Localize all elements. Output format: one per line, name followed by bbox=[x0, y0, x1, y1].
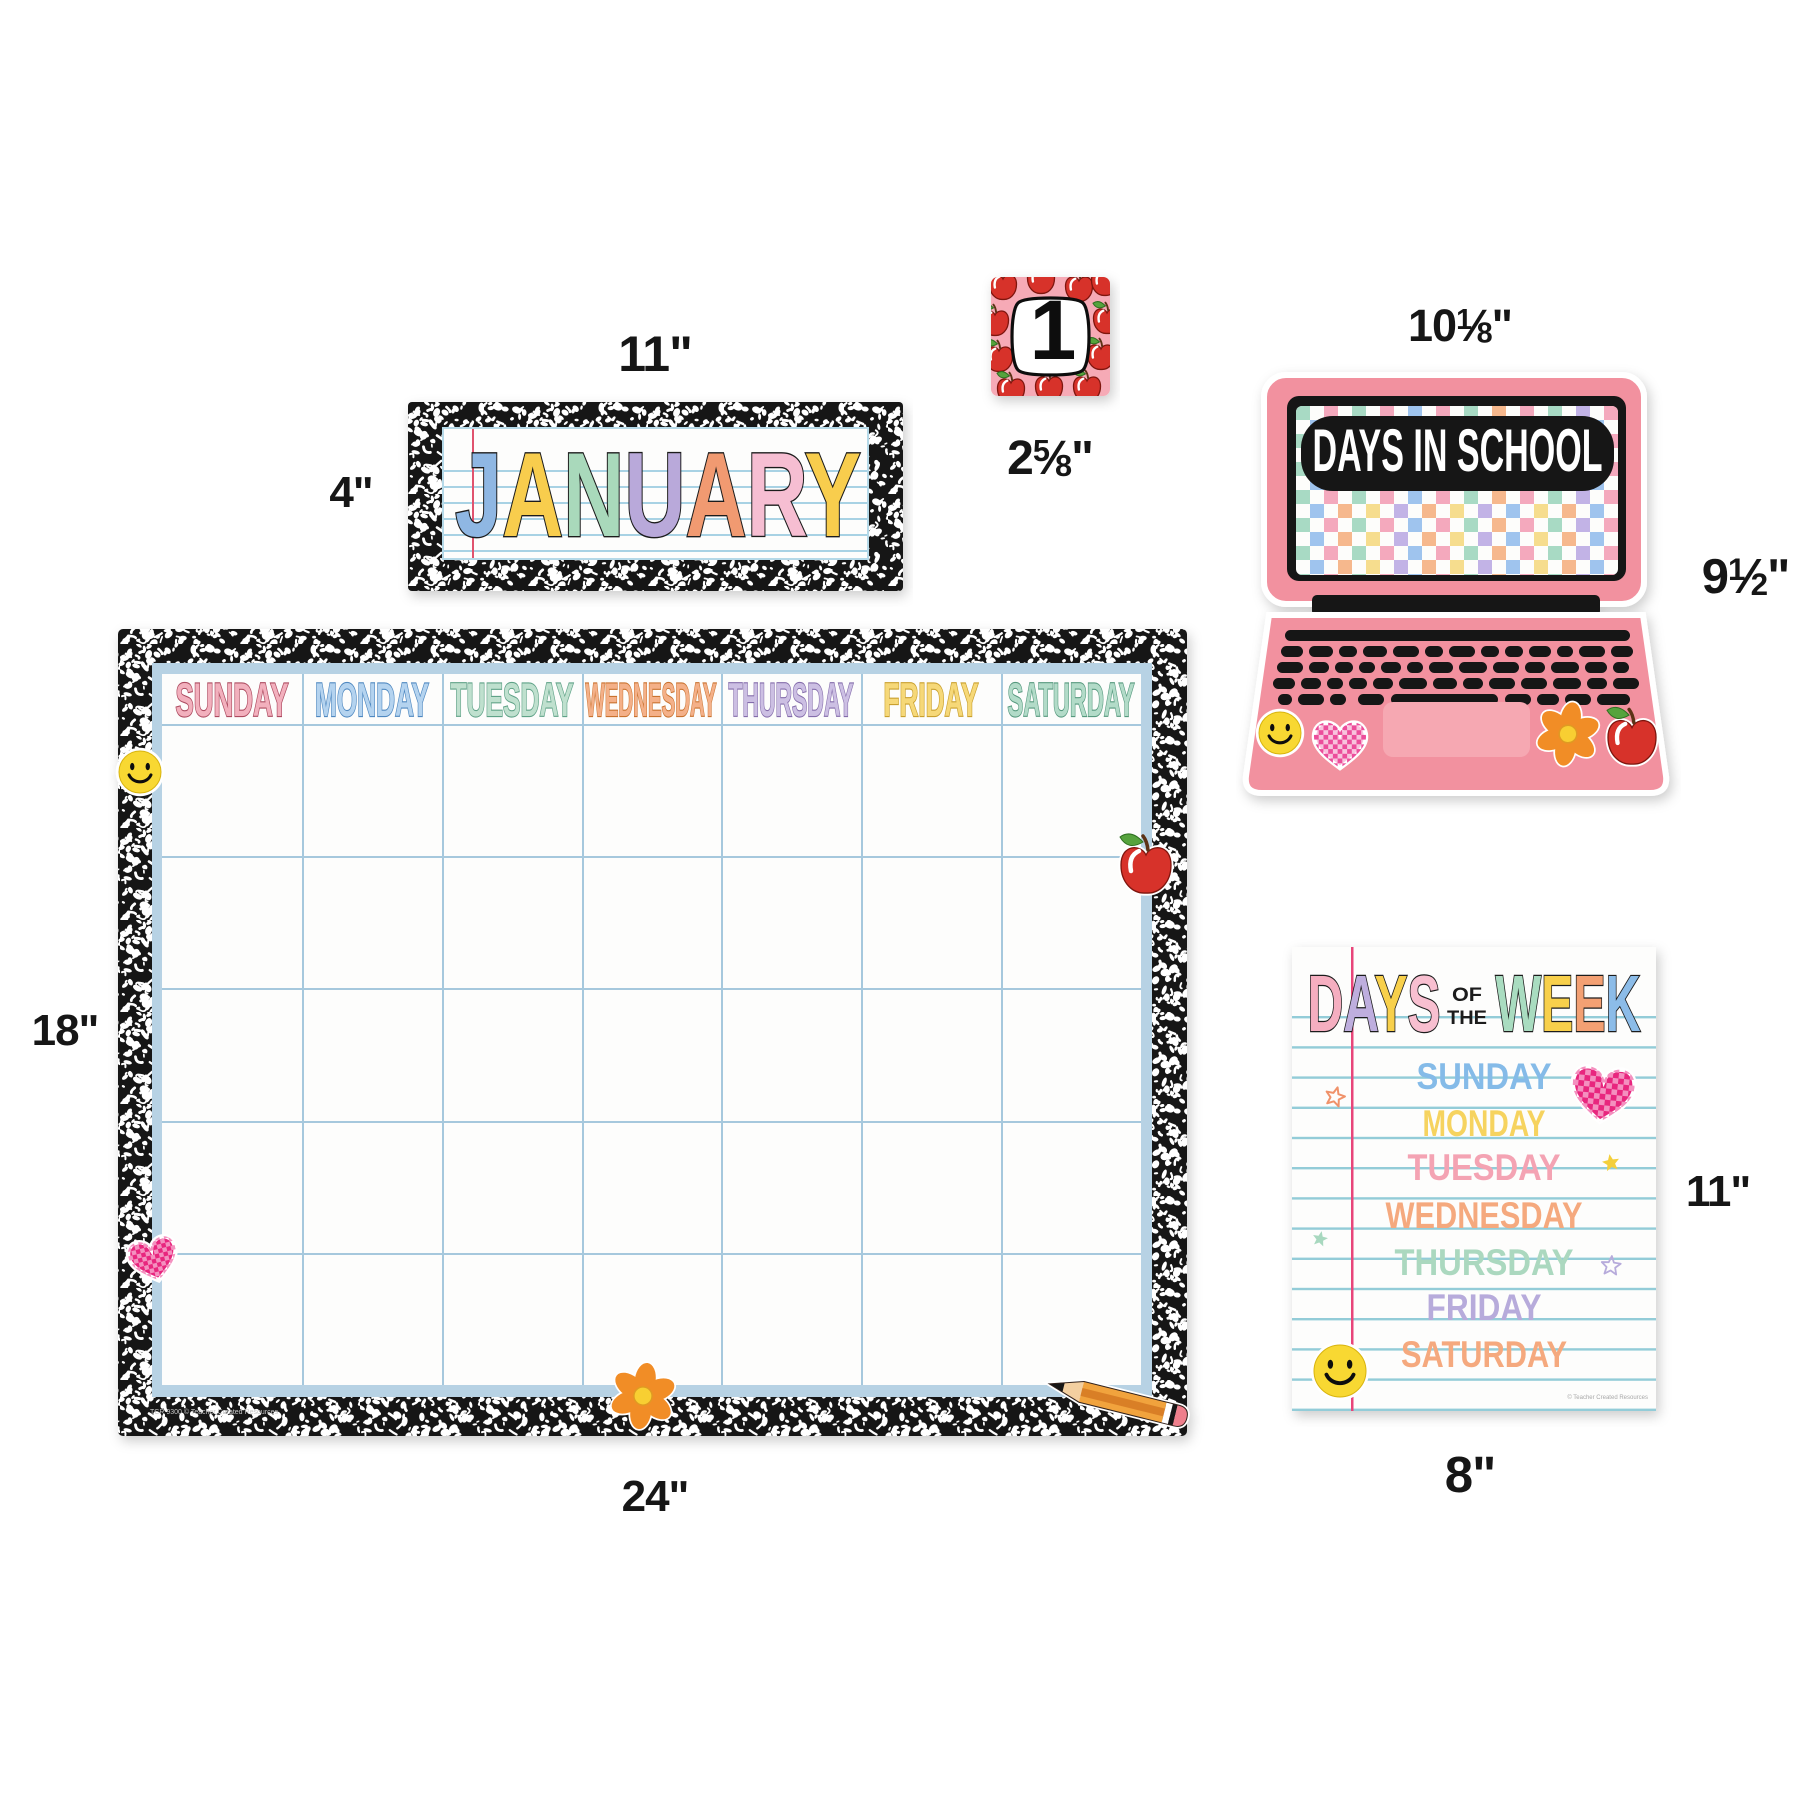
svg-text:THURSDAY: THURSDAY bbox=[729, 673, 854, 726]
svg-text:MONDAY: MONDAY bbox=[315, 673, 429, 726]
svg-text:DAYS IN SCHOOL: DAYS IN SCHOOL bbox=[1313, 417, 1603, 484]
svg-text:TUESDAY: TUESDAY bbox=[1408, 1147, 1561, 1188]
svg-text:JANUARY: JANUARY bbox=[455, 428, 861, 562]
svg-text:FRIDAY: FRIDAY bbox=[1427, 1287, 1542, 1328]
svg-text:SATURDAY: SATURDAY bbox=[1008, 673, 1135, 726]
svg-text:FRIDAY: FRIDAY bbox=[884, 673, 979, 726]
svg-text:SATURDAY: SATURDAY bbox=[1401, 1334, 1567, 1375]
svg-text:SUNDAY: SUNDAY bbox=[1417, 1056, 1552, 1097]
svg-text:SUNDAY: SUNDAY bbox=[176, 673, 289, 726]
svg-text:THE: THE bbox=[1447, 1008, 1487, 1029]
svg-text:THURSDAY: THURSDAY bbox=[1395, 1242, 1574, 1283]
svg-text:TUESDAY: TUESDAY bbox=[451, 673, 574, 726]
svg-text:WEDNESDAY: WEDNESDAY bbox=[1386, 1195, 1583, 1236]
svg-text:MONDAY: MONDAY bbox=[1423, 1103, 1546, 1144]
svg-text:1: 1 bbox=[1030, 283, 1077, 377]
svg-text:OF: OF bbox=[1452, 985, 1482, 1006]
svg-text:© Teacher Created Resources: © Teacher Created Resources bbox=[1567, 1394, 1648, 1401]
svg-text:WEDNESDAY: WEDNESDAY bbox=[586, 673, 717, 726]
svg-text:TCR 9300 © Teacher Created Res: TCR 9300 © Teacher Created Resources bbox=[150, 1408, 278, 1416]
svg-text:DAYS: DAYS bbox=[1308, 959, 1441, 1048]
svg-text:WEEK: WEEK bbox=[1496, 959, 1641, 1048]
